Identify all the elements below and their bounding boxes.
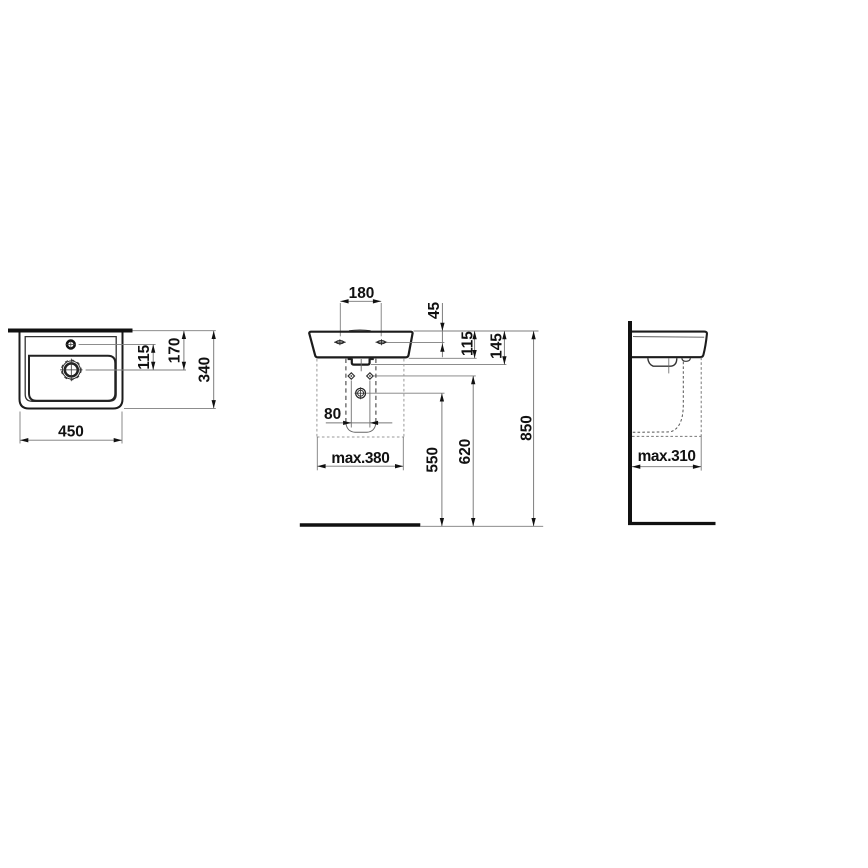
svg-text:170: 170 <box>167 338 184 364</box>
svg-text:80: 80 <box>324 406 341 423</box>
svg-text:180: 180 <box>349 285 375 302</box>
svg-text:max.380: max.380 <box>331 450 389 467</box>
svg-text:145: 145 <box>489 333 506 359</box>
svg-text:340: 340 <box>197 357 214 383</box>
svg-text:115: 115 <box>136 344 153 369</box>
svg-text:max.310: max.310 <box>638 448 696 465</box>
svg-text:45: 45 <box>426 302 443 320</box>
svg-text:550: 550 <box>425 447 442 473</box>
svg-text:450: 450 <box>58 423 84 440</box>
svg-text:620: 620 <box>457 439 474 465</box>
svg-text:115: 115 <box>460 331 477 356</box>
svg-text:850: 850 <box>518 415 535 441</box>
